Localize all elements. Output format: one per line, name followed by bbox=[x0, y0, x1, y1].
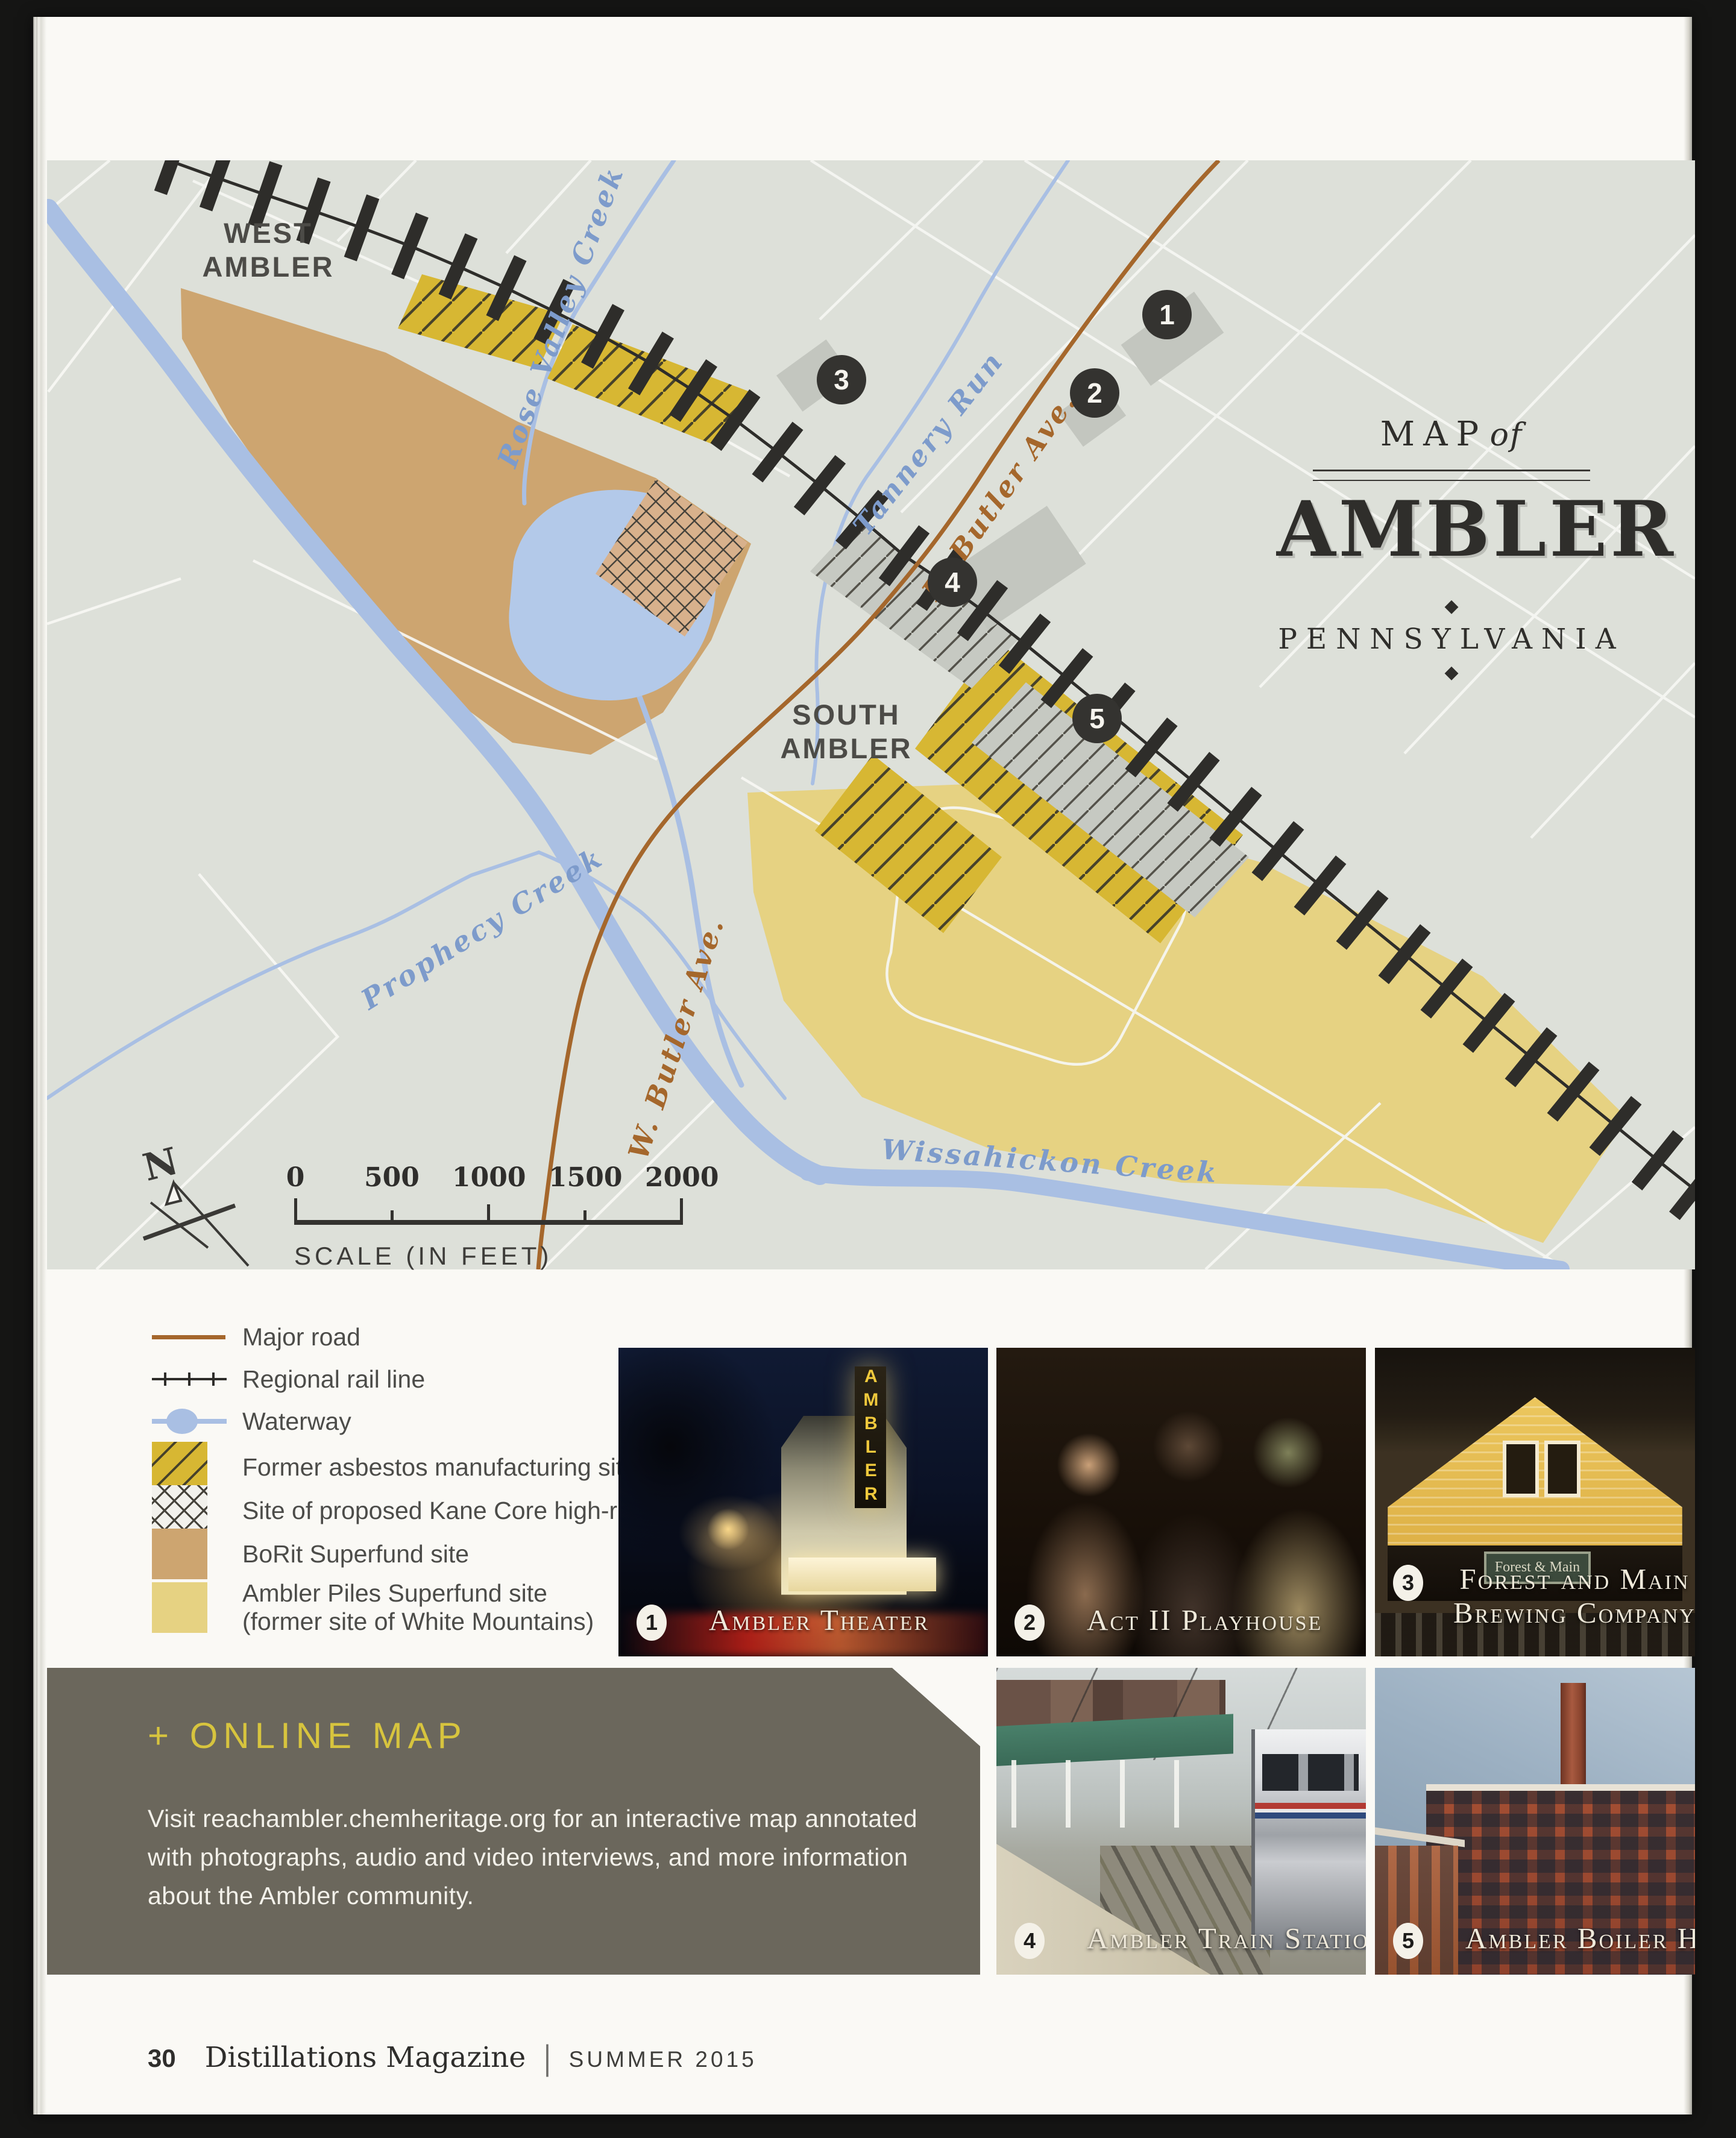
label-west-ambler: WEST AMBLER bbox=[202, 216, 334, 284]
photo-ambler-theater: AMBLER 1 Ambler Theater bbox=[618, 1348, 988, 1656]
legend-item-piles: Ambler Piles Superfund site (former site… bbox=[152, 1574, 594, 1641]
map-marker-4: 4 bbox=[928, 558, 977, 607]
title-flourish bbox=[1313, 470, 1590, 481]
lit-marquee bbox=[788, 1558, 936, 1591]
scale-bar-tick bbox=[391, 1210, 394, 1225]
photo-forest-and-main: Forest & Main 3 Forest and Main Brewing … bbox=[1375, 1348, 1695, 1656]
tree-silhouette bbox=[618, 1348, 792, 1595]
magazine-title: Distillations Magazine bbox=[205, 2041, 526, 2074]
footer-separator: | bbox=[544, 2039, 550, 2078]
map-marker-1: 1 bbox=[1142, 290, 1192, 339]
photo-act-ii-playhouse: 2 Act II Playhouse bbox=[996, 1348, 1366, 1656]
photo-badge-4: 4 bbox=[1014, 1923, 1045, 1959]
train-stripe bbox=[1255, 1803, 1366, 1819]
photo-badge-2: 2 bbox=[1014, 1605, 1045, 1641]
scale-tick-500: 500 bbox=[356, 1162, 428, 1193]
piles-swatch bbox=[152, 1582, 242, 1633]
page-number: 30 bbox=[148, 2044, 176, 2073]
scale-bar-tick bbox=[680, 1198, 683, 1225]
photo-badge-3: 3 bbox=[1393, 1565, 1423, 1601]
major-road-swatch bbox=[152, 1335, 242, 1339]
online-map-callout: + ONLINE MAP Visit reachambler.chemherit… bbox=[47, 1668, 980, 1975]
scale-tick-1500: 1500 bbox=[549, 1162, 621, 1193]
photo-caption-2: Act II Playhouse bbox=[1087, 1603, 1322, 1637]
scanned-magazine-page: WEST AMBLER SOUTH AMBLER Rose Valley Cre… bbox=[0, 0, 1736, 2138]
photo-caption-5: Ambler Boiler House bbox=[1465, 1922, 1695, 1955]
map-marker-3: 3 bbox=[817, 355, 866, 404]
platform-posts bbox=[1011, 1760, 1218, 1828]
scale-bar-tick bbox=[487, 1204, 490, 1225]
label-south-ambler: SOUTH AMBLER bbox=[780, 698, 912, 766]
photo-ambler-boiler-house: 5 Ambler Boiler House bbox=[1375, 1668, 1695, 1975]
issue-label: SUMMER 2015 bbox=[569, 2047, 757, 2072]
photo-caption-4: Ambler Train Station bbox=[1087, 1922, 1366, 1955]
compass-rose-icon bbox=[108, 1169, 259, 1278]
street-lamp-glow bbox=[707, 1508, 749, 1550]
photo-ambler-train-station: 4 Ambler Train Station bbox=[996, 1668, 1366, 1975]
photo-badge-5: 5 bbox=[1393, 1923, 1423, 1959]
train-windows bbox=[1262, 1754, 1358, 1791]
page-footer: 30 Distillations Magazine | SUMMER 2015 bbox=[148, 2041, 757, 2074]
map-title: MAP of AMBLER ◆ PENNSYLVANIA ◆ bbox=[1277, 415, 1626, 689]
map-marker-5: 5 bbox=[1072, 694, 1122, 743]
map-title-kicker: MAP of bbox=[1277, 415, 1626, 454]
online-map-heading: + ONLINE MAP bbox=[148, 1715, 467, 1756]
scale-tick-1000: 1000 bbox=[452, 1162, 524, 1193]
gable-window bbox=[1544, 1441, 1580, 1497]
scale-caption: SCALE (IN FEET) bbox=[294, 1242, 552, 1271]
online-map-body: Visit reachambler.chemheritage.org for a… bbox=[148, 1799, 917, 1915]
photo-badge-1: 1 bbox=[637, 1605, 667, 1641]
gable-window bbox=[1503, 1441, 1539, 1497]
ambler-marquee-sign: AMBLER bbox=[855, 1366, 886, 1508]
map-marker-2: 2 bbox=[1070, 368, 1119, 418]
borit-swatch bbox=[152, 1529, 242, 1579]
photo-caption-3: Forest and Main Brewing Company bbox=[1453, 1562, 1695, 1630]
photo-caption-1: Ambler Theater bbox=[709, 1603, 929, 1637]
legend-item-borit: BoRit Superfund site bbox=[152, 1526, 469, 1582]
scale-tick-0: 0 bbox=[259, 1162, 332, 1193]
scale-bar-tick bbox=[583, 1210, 587, 1225]
scale-bar: 0 500 1000 1500 2000 SCALE (IN FEET) bbox=[283, 1162, 705, 1268]
scale-tick-2000: 2000 bbox=[645, 1162, 717, 1193]
map-title-name: AMBLER bbox=[1277, 485, 1626, 574]
map-title-region: ◆ PENNSYLVANIA ◆ bbox=[1277, 590, 1626, 689]
rail-line-swatch bbox=[152, 1370, 242, 1388]
scale-bar-tick bbox=[294, 1198, 297, 1225]
waterway-swatch bbox=[152, 1407, 242, 1435]
